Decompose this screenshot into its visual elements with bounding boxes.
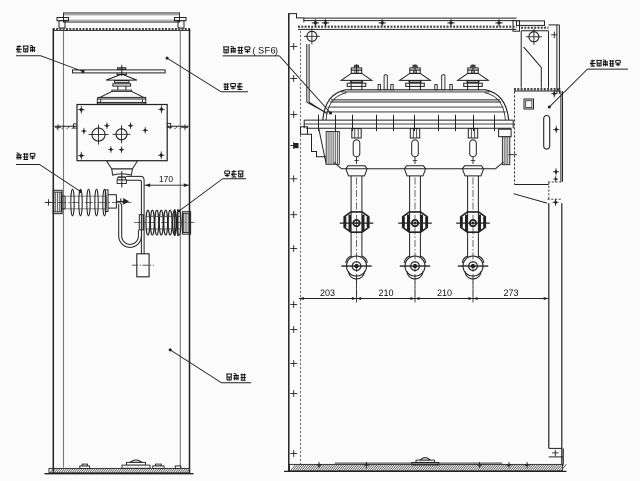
svg-text:(: ( bbox=[253, 46, 256, 56]
svg-text:273: 273 bbox=[503, 288, 518, 298]
svg-text:SF6: SF6 bbox=[258, 46, 276, 56]
svg-text:203: 203 bbox=[320, 288, 335, 298]
svg-text:210: 210 bbox=[378, 288, 393, 298]
svg-text:210: 210 bbox=[437, 288, 452, 298]
svg-text:170: 170 bbox=[159, 174, 173, 184]
svg-text:): ) bbox=[275, 46, 278, 56]
